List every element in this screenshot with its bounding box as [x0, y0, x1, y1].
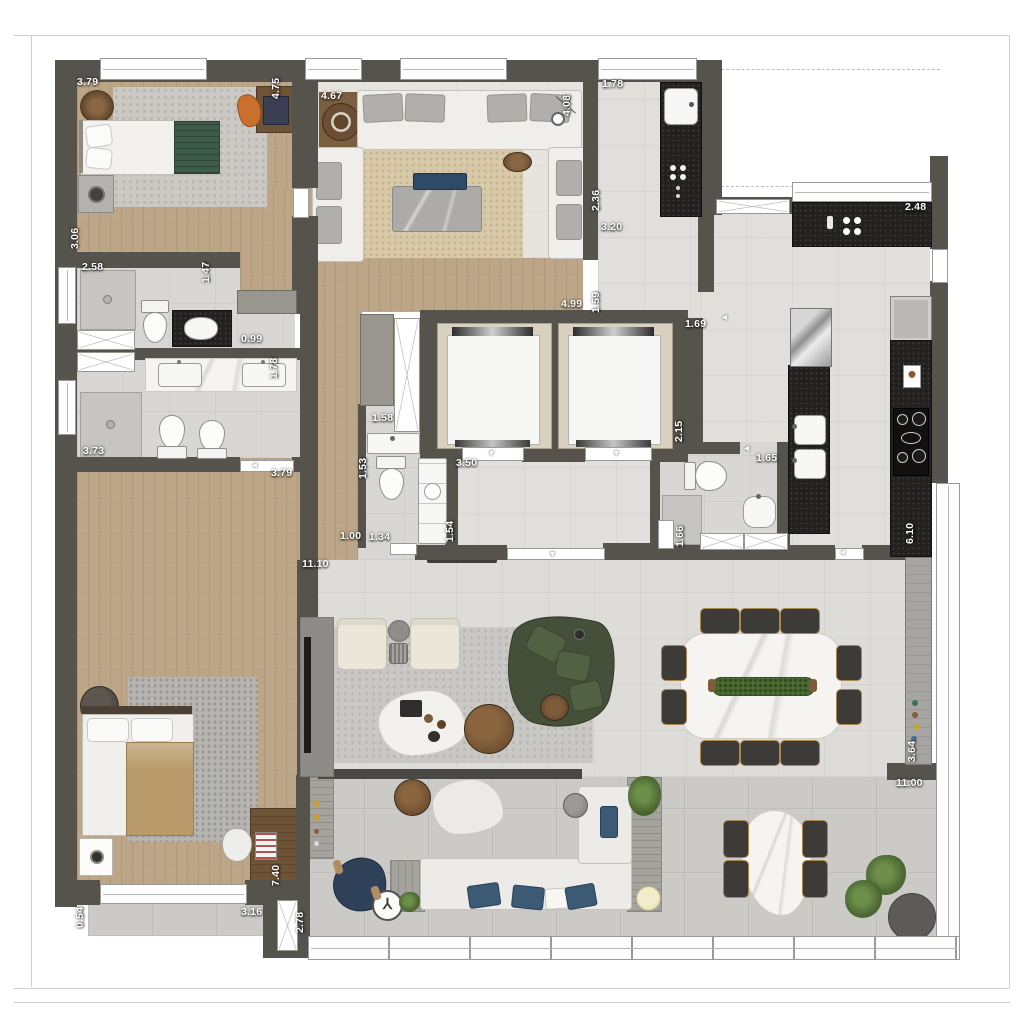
tv-screen [304, 637, 311, 753]
window-master-balcony [100, 884, 247, 904]
computer-master-desk [255, 832, 277, 860]
burner-icon [897, 414, 908, 425]
dim-label: 7.40 [271, 865, 282, 886]
dining-chair [836, 689, 862, 725]
dim-label: 1.58 [372, 413, 393, 424]
dim-label: 3.79 [77, 77, 98, 88]
table-lamp [88, 186, 105, 203]
faucet-icon [792, 458, 797, 463]
vanity-lavabo [418, 458, 447, 544]
art-frame [903, 365, 921, 388]
terrace-chair [802, 860, 828, 898]
dining-chair [661, 645, 687, 681]
frame-line-bottom2 [14, 1002, 1010, 1003]
floor-balcony [88, 903, 263, 936]
wall-suite-east [300, 312, 318, 560]
dining-planter [712, 677, 815, 696]
column-round [888, 893, 936, 941]
coffee-machine-icon [670, 165, 676, 171]
closet-rack-col [82, 588, 110, 640]
wall-right-upper [930, 156, 948, 249]
dim-label: 2.15 [674, 421, 685, 442]
sofa-cushion [487, 93, 528, 122]
shower-drain [103, 295, 112, 304]
frame-line-left [31, 35, 32, 987]
wall-elev-top [420, 310, 688, 324]
fridge [890, 296, 932, 342]
elevator-1-cab [447, 335, 540, 445]
decor-item [912, 700, 918, 706]
dim-label: 4.67 [321, 91, 342, 102]
door-arrow-down: ▼ [487, 448, 496, 458]
dim-label: 2.78 [295, 912, 306, 933]
dim-label: 1.54 [445, 521, 456, 542]
pouf-gray-terrace [563, 793, 588, 818]
armchair-cream-1 [337, 618, 387, 670]
frame-line-right [1009, 35, 1010, 987]
dim-label: 1.78 [269, 358, 280, 379]
cabinet-bath3-b [744, 533, 788, 550]
window-left-small-1 [58, 267, 76, 324]
dim-label: 1.47 [201, 262, 212, 283]
dim-label: 2.48 [905, 202, 926, 213]
dim-label: 1.65 [756, 453, 777, 464]
elevator-1-door-bottom [455, 440, 530, 447]
sofa-green-cushion [554, 649, 592, 682]
coffee-table-tvroom [392, 186, 482, 232]
dim-label: 1.78 [602, 79, 623, 90]
dining-chair [740, 740, 780, 766]
wall-left [55, 60, 77, 907]
side-table-wood [503, 152, 532, 172]
dim-label: 3.79 [271, 468, 292, 479]
closet-door-tall [394, 318, 420, 432]
door-gourmet-double [716, 199, 790, 214]
door-service [390, 543, 417, 555]
dim-label: 2.58 [82, 262, 103, 273]
dim-label: 6.10 [905, 523, 916, 544]
tray-navy [413, 173, 467, 190]
cabinet-bath1-b [77, 352, 135, 372]
door-arrow-left: ◄ [250, 460, 259, 470]
dim-label: 3.64 [907, 741, 918, 762]
window-coffeebar [598, 58, 697, 80]
burner-icon [912, 449, 926, 463]
dim-label: 4.99 [561, 299, 582, 310]
sink-master-1 [158, 363, 202, 387]
elevator-2-cab [568, 335, 661, 445]
buffet-cabinet-dining [905, 557, 932, 765]
elevator-2-door-top [573, 327, 654, 336]
planter-cap [708, 679, 716, 692]
floor-plan-canvas: ⅄ ▼ ▼ ▼ ◄ ◄ ◄ ◄ 3.79 4.75 4.67 4.08 1.78… [0, 0, 1024, 1033]
globe-lamp [636, 886, 661, 911]
mirror-panel [790, 308, 832, 367]
planter-cap [809, 679, 817, 692]
dim-label: 4.08 [562, 95, 573, 116]
faucet-icon [756, 494, 761, 499]
cabinet-bath1-a [77, 330, 135, 350]
decor-bowl-dark [428, 731, 440, 742]
floor-lamp-living [574, 629, 585, 640]
dim-label: 11.00 [896, 778, 923, 789]
closet-rack-row1 [80, 555, 228, 585]
faucet-icon [390, 436, 395, 441]
sink-bath3 [743, 496, 776, 528]
sofa-cushion [316, 162, 342, 200]
dining-chair [780, 740, 820, 766]
wall-bed1-east-a [292, 82, 318, 188]
burner-icon [912, 412, 926, 426]
window-gourmet [792, 182, 932, 202]
window-tvroom-b [400, 58, 507, 80]
burner-oval-icon [901, 432, 921, 444]
pillow [85, 123, 114, 148]
wall-tvroom-east [583, 82, 598, 260]
bidet-base [197, 448, 227, 459]
dim-label: 1.59 [591, 292, 602, 313]
door-arrow-left: ◄ [720, 312, 729, 322]
pillow [131, 718, 173, 742]
dim-label: 0.54 [75, 907, 86, 928]
sofa-cushion [556, 160, 582, 196]
faucet-icon [177, 360, 181, 364]
outdoor-cushion-navy [511, 884, 545, 910]
dim-label: 3.20 [601, 222, 622, 233]
dim-label: 3.73 [83, 446, 104, 457]
window-tvroom-a [305, 58, 362, 80]
wall-topright-step [700, 60, 722, 215]
side-table-slatted [389, 643, 408, 664]
faucet-icon [261, 360, 265, 364]
window-terrace-bottom [308, 936, 960, 960]
sofa-cushion [362, 93, 403, 123]
dim-label: 1.53 [358, 458, 369, 479]
sink-bath1 [184, 317, 218, 340]
sofa-cushion [556, 204, 582, 240]
faucet-icon [792, 424, 797, 429]
bed-blanket-green [174, 121, 220, 174]
dim-label: 1.34 [369, 532, 390, 543]
wall-masterbath-south-a [55, 457, 240, 472]
bed-headboard [79, 120, 83, 173]
dim-label: 1.00 [340, 531, 361, 542]
bed-master-headboard [82, 706, 192, 714]
dining-chair [700, 608, 740, 634]
bed-master-blanket [126, 742, 194, 836]
dim-label: 3.16 [241, 907, 262, 918]
toilet-tank-master [157, 446, 187, 459]
round-table-brown [394, 779, 431, 816]
elevator-1-door-top [452, 327, 533, 336]
ottoman-round-brown [464, 704, 514, 754]
armchair-cream-2 [410, 618, 460, 670]
window-terrace-right [936, 483, 960, 940]
frame-line-bottom1 [14, 988, 1010, 989]
closet-rack-row0 [80, 474, 228, 502]
wall-bed-south-a [77, 880, 100, 905]
wall-elev-bottom-b [522, 447, 585, 462]
sofa-cushion [316, 206, 342, 244]
coffee-table-organic [378, 690, 466, 756]
shower-drain [106, 420, 115, 429]
dining-chair [836, 645, 862, 681]
door-arrow-down: ▼ [612, 448, 621, 458]
dim-label: 1.69 [685, 319, 706, 330]
side-table-wood-green-sofa [540, 694, 569, 721]
coffee-pot-icon [827, 216, 833, 229]
kitchen-sink-1 [794, 415, 826, 445]
terrace-chair [802, 820, 828, 858]
dim-label: 11.10 [302, 559, 329, 570]
door-arrow-left: ◄ [838, 547, 847, 557]
shaft-duct-2 [237, 290, 297, 314]
sofa-cushion [405, 93, 446, 122]
dining-chair [700, 740, 740, 766]
bar-table-round [322, 103, 360, 141]
outdoor-cushion-navy-vert [600, 806, 618, 838]
dining-chair [661, 689, 687, 725]
office-chair-master [222, 828, 252, 862]
nightstand-round-bed1 [80, 90, 114, 123]
faucet-icon [689, 102, 694, 107]
window-bedroom1 [100, 58, 207, 80]
door-kitchen-side [932, 249, 948, 283]
dim-label: 3.50 [456, 458, 477, 469]
door-arrow-left: ◄ [742, 443, 751, 453]
dim-label: 3.06 [70, 228, 81, 249]
door-bath3 [658, 520, 674, 549]
terrace-chair [723, 820, 749, 858]
window-left-small-2 [58, 380, 76, 435]
side-table-gray [388, 620, 410, 642]
pillow [87, 718, 129, 742]
table-lamp [90, 850, 104, 864]
terrace-chair [723, 860, 749, 898]
planter-wall-living-terrace [318, 769, 582, 779]
dim-label: 0.99 [241, 334, 262, 345]
outdoor-cushion-navy [467, 882, 502, 909]
door-bedroom1 [293, 188, 309, 218]
door-arrow-down: ▼ [548, 549, 557, 559]
pillow [85, 147, 113, 171]
sink-lavabo [424, 483, 441, 500]
decor-bowl [424, 714, 433, 723]
dining-chair [780, 608, 820, 634]
cabinet-bath3-a [700, 533, 744, 550]
dining-chair [740, 608, 780, 634]
dim-label: 2.36 [591, 190, 602, 211]
wall-hall-south-a [415, 545, 507, 560]
elevator-2-door-bottom [576, 440, 651, 447]
burner-icon [897, 452, 908, 463]
wall-elev-left [420, 310, 437, 462]
kitchen-sink-2 [794, 449, 826, 479]
wall-kitchen-mid-lower [683, 318, 703, 445]
deck-tray-items [313, 800, 320, 807]
tray-black [400, 700, 422, 717]
shaft-duct-1 [360, 314, 394, 406]
wall-right [930, 281, 948, 483]
dim-label: 1.66 [675, 526, 686, 547]
cooktop-small-icon [843, 217, 850, 224]
laptop-bed1 [263, 96, 289, 125]
dim-label: 4.75 [271, 78, 282, 99]
wardrobe-bedroom1 [78, 217, 237, 252]
decor-bowl [437, 720, 446, 729]
closet-rack-row2 [82, 640, 228, 670]
frame-line-top [14, 35, 1010, 36]
table-organic-white [432, 779, 504, 835]
